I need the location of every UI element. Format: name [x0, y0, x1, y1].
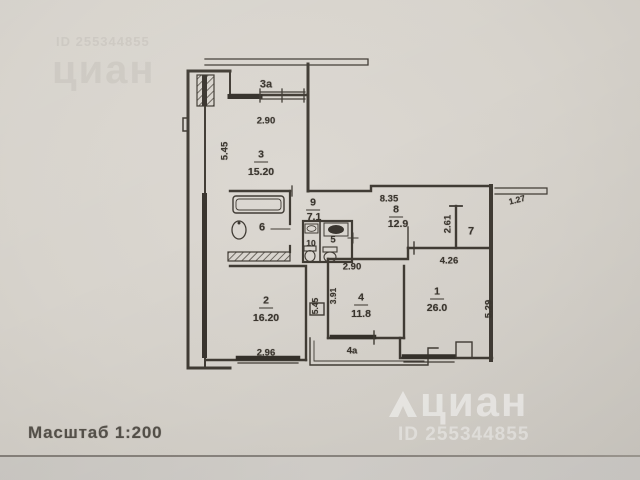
room-1-area: 26.0: [427, 303, 447, 314]
bathtub-icon: [233, 196, 284, 213]
dim-room1-width: 4.26: [440, 256, 459, 266]
room-4-area: 11.8: [351, 309, 371, 320]
dim-wall-mid: 2.61: [443, 215, 453, 234]
dim-room1-height: 5.29: [484, 300, 494, 319]
dim-room4-height: 3.91: [329, 288, 338, 305]
faint-watermark-brand: циан: [52, 48, 156, 93]
room-8-number: 8: [389, 205, 403, 218]
watermark-listing-id: ID 255344855: [398, 424, 529, 446]
balcony-3a-label: 3а: [260, 80, 272, 91]
table-surface: [0, 457, 640, 480]
walls: [183, 59, 547, 368]
dim-room2-height: 5.45: [311, 298, 320, 315]
room-6-number: 6: [259, 223, 265, 234]
sink-icon: [232, 221, 246, 239]
watermark-brand: циан: [420, 381, 528, 423]
room-10-number: 10: [306, 239, 315, 248]
balcony-4a-label: 4а: [347, 346, 358, 356]
room-3-area: 15.20: [248, 167, 274, 178]
wc-sink-icon: [305, 224, 318, 233]
room-5-number: 5: [330, 235, 335, 245]
faint-watermark-id: ID 255344855: [56, 34, 150, 49]
dim-room4-width: 2.90: [343, 262, 362, 272]
toilet-icon: [304, 246, 316, 262]
room-4-number: 4: [354, 293, 368, 306]
floorplan-photo: 3а 2.90 5.45 3 15.20 9 7.1 8.35 8 12.9 2…: [0, 0, 640, 480]
room-2-number: 2: [259, 296, 273, 309]
dim-hall-width: 8.35: [380, 194, 399, 204]
room-9-area: 7.1: [307, 212, 322, 223]
room-9-number: 9: [306, 198, 320, 211]
dim-room2-width: 2.96: [257, 348, 276, 358]
room-1-number: 1: [430, 287, 444, 300]
dim-room3-height: 5.45: [220, 142, 230, 161]
shaft-window: [202, 193, 207, 358]
cian-house-icon: [388, 390, 418, 418]
room-8-area: 12.9: [388, 219, 408, 230]
balcony-railing: [205, 59, 368, 65]
scale-label: Масштаб 1:200: [28, 423, 162, 443]
room-7-number: 7: [468, 227, 474, 238]
room-3-number: 3: [254, 150, 268, 163]
dim-room3-width: 2.90: [257, 116, 276, 126]
wc-basin-icon: [324, 223, 348, 236]
room-2-area: 16.20: [253, 313, 279, 324]
